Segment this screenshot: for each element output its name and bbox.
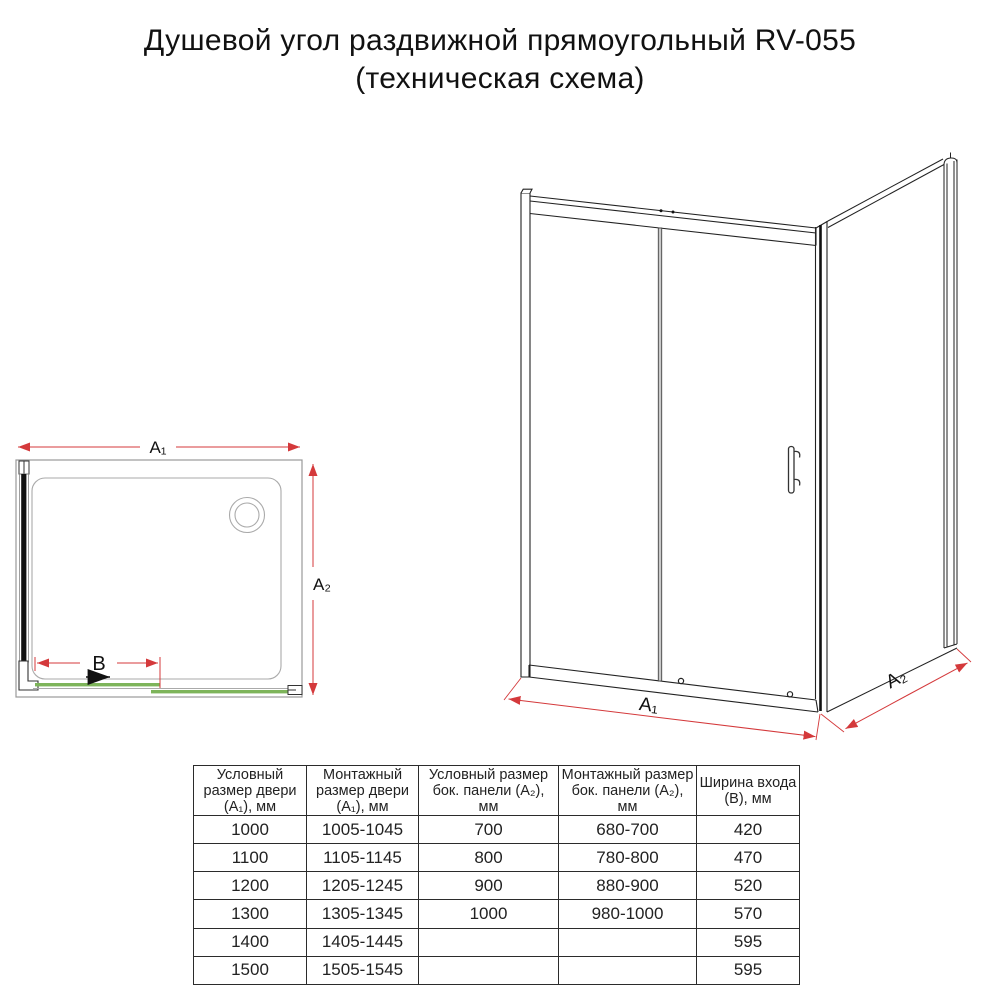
table-cell: 1100 bbox=[194, 844, 307, 872]
iso-handle bbox=[789, 447, 800, 494]
table-cell: 1105-1145 bbox=[307, 844, 419, 872]
spec-table: Условный размер двери (A₁), мм Монтажный… bbox=[193, 765, 800, 985]
corner-bracket bbox=[288, 686, 302, 695]
table-cell: 700 bbox=[419, 816, 559, 844]
iso-side-panel bbox=[827, 153, 957, 713]
table-cell: 1300 bbox=[194, 900, 307, 928]
table-cell: 470 bbox=[697, 844, 800, 872]
roller-bolt bbox=[660, 209, 663, 212]
plan-view: A₁ A₂ B bbox=[16, 438, 331, 697]
plan-dim-a2-label: A₂ bbox=[313, 575, 331, 594]
iso-door-frame bbox=[521, 189, 828, 712]
door-roller bbox=[678, 678, 683, 683]
iso-view: A₁ A₂ bbox=[504, 153, 971, 741]
technical-scheme-page: Душевой угол раздвижной прямоугольный RV… bbox=[0, 0, 1000, 1000]
table-cell: 1200 bbox=[194, 872, 307, 900]
table-cell: 1400 bbox=[194, 928, 307, 956]
table-row: 1400 1405-1445 595 bbox=[194, 928, 800, 956]
table-cell: 595 bbox=[697, 928, 800, 956]
iso-dim-a2-label: A₂ bbox=[883, 665, 911, 693]
table-cell: 1000 bbox=[419, 900, 559, 928]
table-cell: 1305-1345 bbox=[307, 900, 419, 928]
table-cell bbox=[559, 928, 697, 956]
table-cell: 570 bbox=[697, 900, 800, 928]
table-header-row: Условный размер двери (A₁), мм Монтажный… bbox=[194, 766, 800, 816]
col-header-panel-mounting: Монтажный размер бок. панели (A₂), мм bbox=[559, 766, 697, 816]
table-cell: 980-1000 bbox=[559, 900, 697, 928]
table-cell: 880-900 bbox=[559, 872, 697, 900]
table-cell: 420 bbox=[697, 816, 800, 844]
table-cell: 1500 bbox=[194, 956, 307, 984]
table-cell: 900 bbox=[419, 872, 559, 900]
plan-outer-rect bbox=[16, 460, 302, 697]
col-header-entry-width: Ширина входа (B), мм bbox=[697, 766, 800, 816]
col-header-door-nominal: Условный размер двери (A₁), мм bbox=[194, 766, 307, 816]
roller-bolt bbox=[672, 211, 675, 214]
table-cell: 1205-1245 bbox=[307, 872, 419, 900]
col-header-panel-nominal: Условный размер бок. панели (A₂), мм bbox=[419, 766, 559, 816]
table-cell: 780-800 bbox=[559, 844, 697, 872]
iso-dim-a1 bbox=[504, 678, 820, 740]
iso-dim-a1-label: A₁ bbox=[638, 694, 660, 717]
table-cell: 1005-1045 bbox=[307, 816, 419, 844]
door-panel-inner bbox=[35, 683, 160, 686]
table-row: 1100 1105-1145 800 780-800 470 bbox=[194, 844, 800, 872]
table-row: 1000 1005-1045 700 680-700 420 bbox=[194, 816, 800, 844]
table-cell bbox=[419, 956, 559, 984]
table-cell: 520 bbox=[697, 872, 800, 900]
iso-door-divider bbox=[658, 228, 661, 681]
table-row: 1200 1205-1245 900 880-900 520 bbox=[194, 872, 800, 900]
table-cell: 595 bbox=[697, 956, 800, 984]
table-cell: 1505-1545 bbox=[307, 956, 419, 984]
table-cell: 800 bbox=[419, 844, 559, 872]
table-cell: 1405-1445 bbox=[307, 928, 419, 956]
table-row: 1500 1505-1545 595 bbox=[194, 956, 800, 984]
col-header-door-mounting: Монтажный размер двери (A₁), мм bbox=[307, 766, 419, 816]
door-panel-outer bbox=[151, 690, 290, 693]
plan-dim-b-label: B bbox=[92, 653, 105, 675]
table-cell bbox=[419, 928, 559, 956]
table-cell: 680-700 bbox=[559, 816, 697, 844]
door-roller bbox=[787, 692, 792, 697]
table-row: 1300 1305-1345 1000 980-1000 570 bbox=[194, 900, 800, 928]
table-cell: 1000 bbox=[194, 816, 307, 844]
table-cell bbox=[559, 956, 697, 984]
plan-dim-a1-label: A₁ bbox=[149, 438, 166, 457]
